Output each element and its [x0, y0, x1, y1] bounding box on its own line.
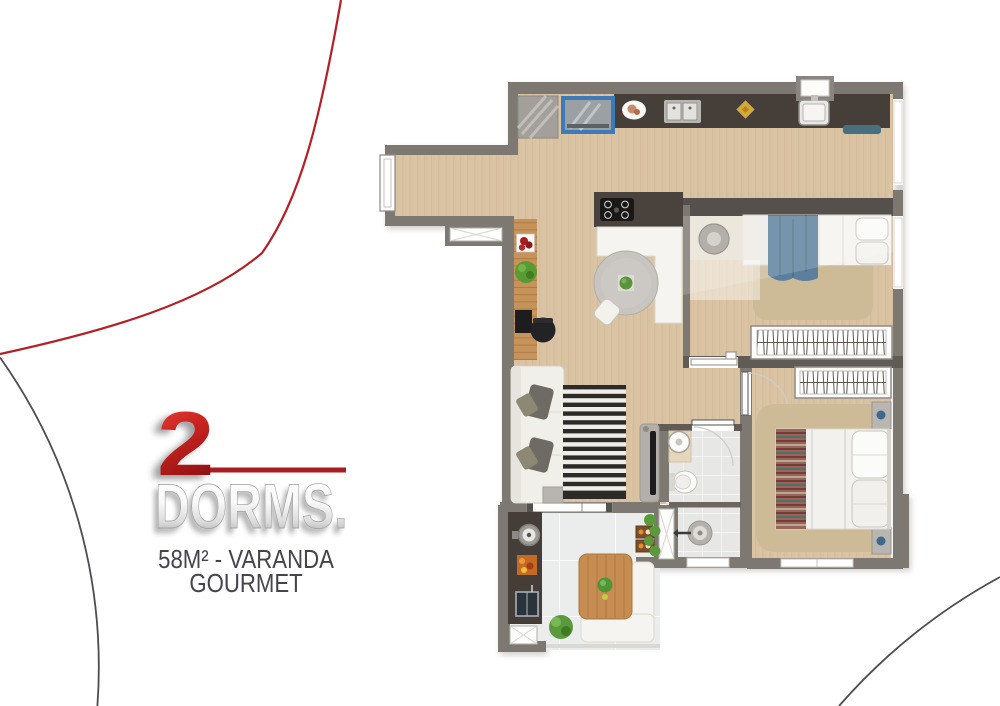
svg-text:GOURMET: GOURMET — [189, 570, 303, 599]
svg-text:DORMS.: DORMS. — [155, 471, 347, 542]
